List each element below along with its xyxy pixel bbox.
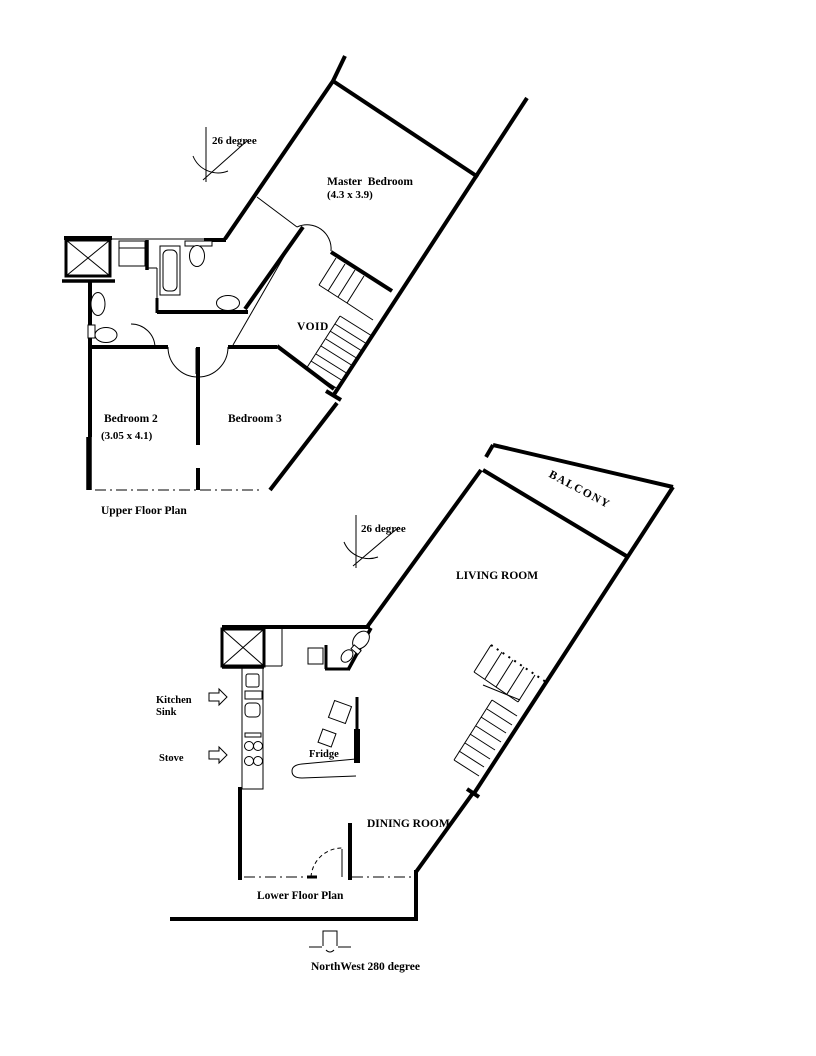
kitchen-sink-arrow-icon <box>209 689 227 705</box>
fridge-area <box>292 697 357 778</box>
angle-arc <box>344 542 378 559</box>
entry-door <box>244 848 414 877</box>
kitchen-sink-label-line2: Sink <box>156 707 177 718</box>
wall-niche <box>88 325 95 338</box>
sink-basin <box>245 703 260 717</box>
burner <box>254 757 263 766</box>
basin-outside <box>308 648 323 664</box>
washbasin <box>190 246 205 267</box>
bedroom-2-label: Bedroom 2 <box>104 413 158 425</box>
drainboard <box>245 691 262 699</box>
angle-arc <box>193 156 228 173</box>
north-arrow-icon <box>323 931 337 946</box>
master-bedroom-label: Master Bedroom <box>327 176 413 188</box>
compass-label: NorthWest 280 degree <box>311 961 420 973</box>
dining-room-label: DINING ROOM <box>367 818 450 830</box>
toilet <box>95 328 117 343</box>
door-swing-arc <box>131 324 155 347</box>
toilet <box>217 296 240 311</box>
bench-outline <box>292 759 356 778</box>
vanity-cabinet <box>119 241 145 248</box>
balcony-label: BALCONY <box>547 469 613 512</box>
lower-exterior-walls <box>170 445 673 921</box>
bedroom-divider <box>168 347 228 490</box>
elevator-shaft-upper <box>66 240 110 276</box>
angle-annotation-lower: 26 degree <box>344 515 406 568</box>
lower-floor-plan: 26 degree BALCONY LIVING ROOM Kitchen Si… <box>156 445 673 921</box>
fridge-label: Fridge <box>309 749 339 760</box>
upper-floor-plan-title: Upper Floor Plan <box>101 505 187 517</box>
floor-plan-page: 26 degree Master Bedroom (4.3 x 3.9) VOI… <box>0 0 816 1056</box>
lower-floor-plan-title: Lower Floor Plan <box>257 890 344 902</box>
burner <box>245 742 254 751</box>
door-swing-arc <box>311 848 342 877</box>
powder-room <box>308 628 373 670</box>
bathtub-inner <box>163 250 177 291</box>
elevator-shaft-lower <box>222 629 282 667</box>
master-bedroom-dimensions: (4.3 x 3.9) <box>327 189 373 201</box>
living-room-label: LIVING ROOM <box>456 570 538 582</box>
stove-label: Stove <box>159 753 184 764</box>
compass: NorthWest 280 degree <box>309 931 420 973</box>
angle-label-lower: 26 degree <box>361 523 406 535</box>
staircase-upper <box>233 232 392 389</box>
upper-floor-plan: 26 degree Master Bedroom (4.3 x 3.9) VOI… <box>62 56 527 517</box>
bedroom-3-label: Bedroom 3 <box>228 413 282 425</box>
fridge-chair <box>318 729 336 747</box>
toilet <box>91 293 105 316</box>
stove-arrow-icon <box>209 747 227 763</box>
kitchen-counter <box>242 668 263 789</box>
burner <box>254 742 263 751</box>
angle-annotation-upper: 26 degree <box>193 127 257 182</box>
fridge-unit <box>328 700 351 723</box>
burner <box>245 757 254 766</box>
floor-plan-drawing: 26 degree Master Bedroom (4.3 x 3.9) VOI… <box>0 0 816 1056</box>
angle-label-upper: 26 degree <box>212 135 257 147</box>
void-label: VOID <box>297 321 329 333</box>
bedroom-2-dimensions: (3.05 x 4.1) <box>101 430 153 442</box>
kitchen-sink-label-line1: Kitchen <box>156 695 192 706</box>
sink-basin <box>246 674 259 687</box>
stove-panel <box>245 733 261 737</box>
vanity-cabinet <box>119 248 145 266</box>
